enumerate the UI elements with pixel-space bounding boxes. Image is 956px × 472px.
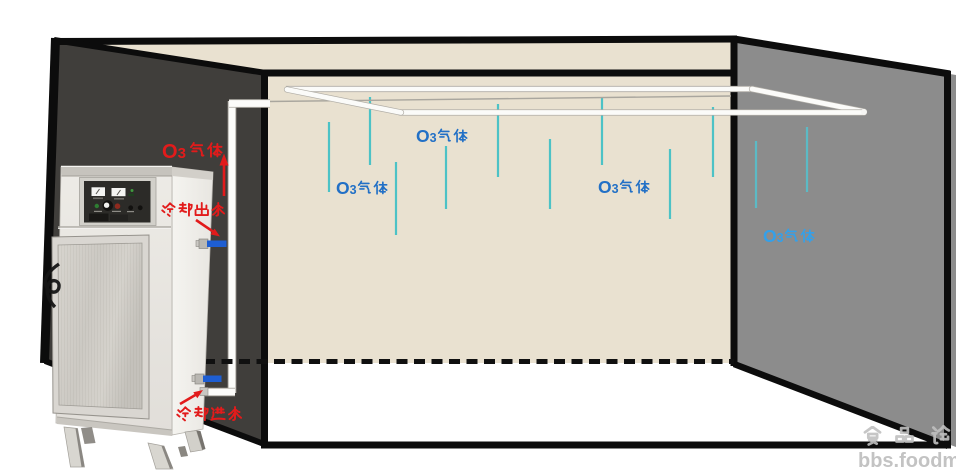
svg-text:O3: O3 xyxy=(162,141,186,163)
svg-text:bbs.foodmate: bbs.foodmate xyxy=(858,450,956,472)
